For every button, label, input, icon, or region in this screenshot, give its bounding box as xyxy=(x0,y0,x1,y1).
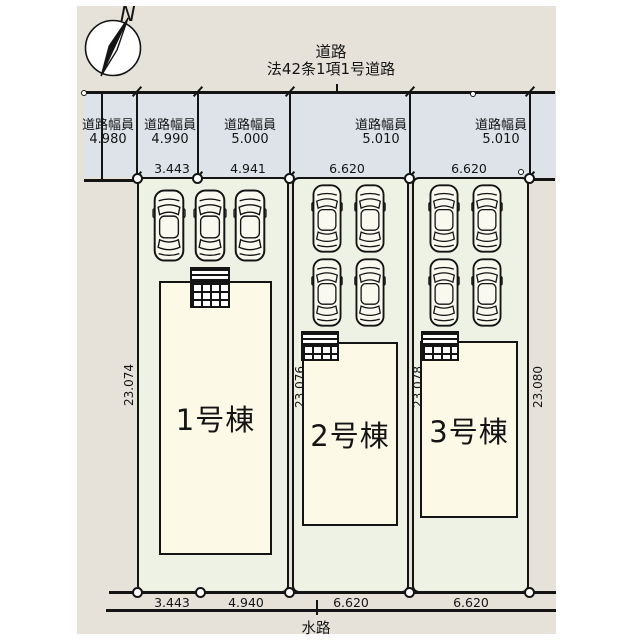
svg-text:N: N xyxy=(120,6,136,26)
porch-steps xyxy=(423,333,457,345)
boundary-marker xyxy=(81,90,87,96)
depth-dim: 23.080 xyxy=(531,355,545,419)
road-name: 道路 xyxy=(246,44,416,61)
road-width-value: 5.010 xyxy=(456,133,546,147)
car-icon xyxy=(427,183,461,254)
entrance-porch-1 xyxy=(190,267,230,308)
entrance-porch-3 xyxy=(421,331,459,361)
road-width-caption: 道路幅員 xyxy=(205,119,295,133)
boundary-marker xyxy=(470,91,476,97)
bottom-dim: 4.940 xyxy=(211,595,281,610)
road-width-value: 4.990 xyxy=(125,133,215,147)
bottom-dim: 6.620 xyxy=(436,595,506,610)
boundary-node xyxy=(404,587,415,598)
building-2: 2号棟 xyxy=(302,342,398,526)
front-dim: 4.941 xyxy=(213,161,283,176)
car-icon xyxy=(310,257,344,328)
boundary-node xyxy=(132,173,143,184)
front-dim: 6.620 xyxy=(434,161,504,176)
porch-tiles xyxy=(423,345,457,359)
porch-tiles xyxy=(303,345,337,359)
car-icon xyxy=(310,183,344,254)
front-dim: 6.620 xyxy=(312,161,382,176)
car-icon xyxy=(470,257,504,328)
boundary-node xyxy=(284,587,295,598)
road-width-label: 道路幅員 4.990 xyxy=(125,119,215,147)
boundary-node xyxy=(195,587,206,598)
waterway-line xyxy=(106,609,556,612)
waterway-leader xyxy=(316,600,318,615)
porch-steps xyxy=(192,269,228,283)
road-law-text: 法42条1項1号道路 xyxy=(246,61,416,78)
depth-dim: 23.078 xyxy=(411,355,425,419)
depth-dim: 23.074 xyxy=(122,353,136,417)
road-width-caption: 道路幅員 xyxy=(125,119,215,133)
building-2-label: 2号棟 xyxy=(310,413,389,455)
building-1: 1号棟 xyxy=(159,281,272,555)
car-icon xyxy=(193,188,227,263)
boundary-node xyxy=(132,587,143,598)
porch-steps xyxy=(303,333,337,345)
building-1-label: 1号棟 xyxy=(176,397,255,439)
boundary-node xyxy=(192,173,203,184)
road-width-value: 5.010 xyxy=(336,133,426,147)
car-icon xyxy=(353,183,387,254)
site-plan: N 道路 法42条1項1号道路 道路幅員 4.980 道路幅員 4.990 道路… xyxy=(0,0,640,640)
compass-north-icon: N xyxy=(82,6,148,82)
depth-dim: 23.076 xyxy=(293,355,307,419)
building-3: 3号棟 xyxy=(420,341,518,518)
boundary-marker xyxy=(518,169,524,175)
road-width-label: 道路幅員 5.010 xyxy=(456,119,546,147)
road-width-caption: 道路幅員 xyxy=(336,119,426,133)
car-icon xyxy=(470,183,504,254)
bottom-dim: 6.620 xyxy=(316,595,386,610)
boundary-node xyxy=(524,587,535,598)
boundary-node xyxy=(524,173,535,184)
road-width-label: 道路幅員 5.000 xyxy=(205,119,295,147)
road-title: 道路 法42条1項1号道路 xyxy=(246,44,416,78)
boundary-node xyxy=(404,173,415,184)
waterway-label: 水路 xyxy=(286,617,346,638)
road-width-label: 道路幅員 5.010 xyxy=(336,119,426,147)
car-icon xyxy=(233,188,267,263)
car-icon xyxy=(353,257,387,328)
bottom-dim: 3.443 xyxy=(137,595,207,610)
road-width-value: 5.000 xyxy=(205,133,295,147)
building-3-label: 3号棟 xyxy=(429,409,508,451)
car-icon xyxy=(152,188,186,263)
boundary-node xyxy=(284,173,295,184)
road-width-caption: 道路幅員 xyxy=(456,119,546,133)
porch-tiles xyxy=(192,283,228,306)
car-icon xyxy=(427,257,461,328)
